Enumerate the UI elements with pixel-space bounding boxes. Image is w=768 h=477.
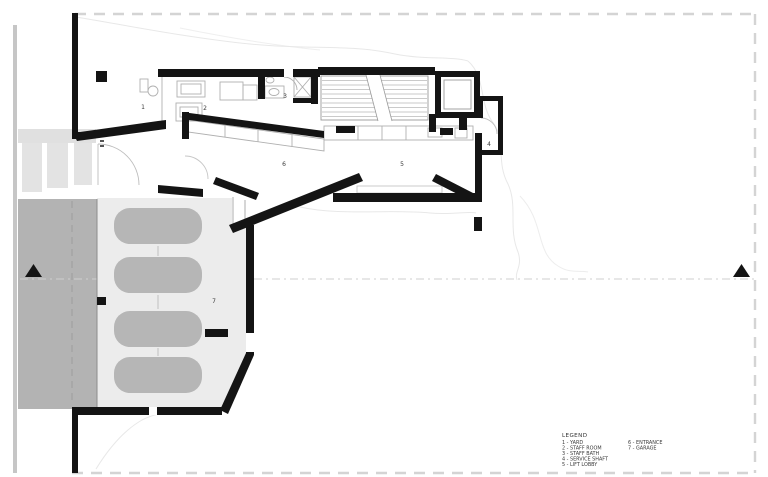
road-edge-band — [13, 25, 17, 473]
legend-item-garage: 7 - GARAGE — [628, 446, 656, 452]
wall-room4-left-upper — [477, 96, 483, 118]
wall-garage-bottom — [72, 407, 222, 415]
wall-top-c — [318, 67, 435, 75]
room-label-entrance: 6 — [282, 161, 286, 168]
legend-title: LEGEND — [562, 433, 587, 439]
wall-stub-kitchen-2 — [440, 128, 453, 135]
room-label-staff-room: 2 — [203, 105, 207, 112]
wall-stub-lift-left — [429, 114, 436, 132]
door-gap-garage-right — [246, 333, 254, 352]
wall-left-lower — [72, 407, 78, 473]
wall-stub-garage-inner — [205, 329, 228, 337]
room-label-garage: 7 — [212, 298, 216, 305]
lift-cab-void — [441, 77, 474, 112]
wall-stub-lift-right — [459, 114, 467, 130]
wall-room3-bottom — [293, 98, 318, 103]
wall-lobby-south — [333, 193, 477, 202]
room-label-lift-lobby: 5 — [400, 161, 404, 168]
car-3 — [114, 311, 202, 347]
legend-item-lift-lobby: 5 - LIFT LOBBY — [562, 462, 597, 468]
wall-right-exterior — [475, 133, 482, 202]
room-label-yard: 1 — [141, 104, 145, 111]
car-1 — [114, 208, 202, 244]
door-gap-garage-bottom — [149, 407, 157, 415]
room-label-service-shaft: 4 — [487, 141, 491, 148]
wall-left-boundary — [72, 13, 78, 138]
garage — [97, 197, 247, 409]
floor-plan-svg: 1 2 3 4 5 6 7 LEGEND 1 - YARD 2 - STAFF … — [0, 0, 768, 477]
car-2 — [114, 257, 202, 293]
driveway — [18, 199, 97, 409]
car-4 — [114, 357, 202, 393]
wall-top-a — [158, 69, 284, 77]
wall-stub-below-right — [474, 217, 482, 231]
wall-yard-column — [96, 71, 107, 82]
wall-room2-3-divider — [258, 69, 265, 99]
room-label-staff-bath: 3 — [283, 93, 287, 100]
wall-stub-garage-left — [97, 297, 106, 305]
entry-steps — [22, 143, 92, 192]
wall-room4-right — [498, 96, 503, 155]
wall-stub-kitchen-1 — [336, 126, 355, 133]
door-gap-bath — [284, 69, 293, 77]
floor-plan-page: 1 2 3 4 5 6 7 LEGEND 1 - YARD 2 - STAFF … — [0, 0, 768, 477]
